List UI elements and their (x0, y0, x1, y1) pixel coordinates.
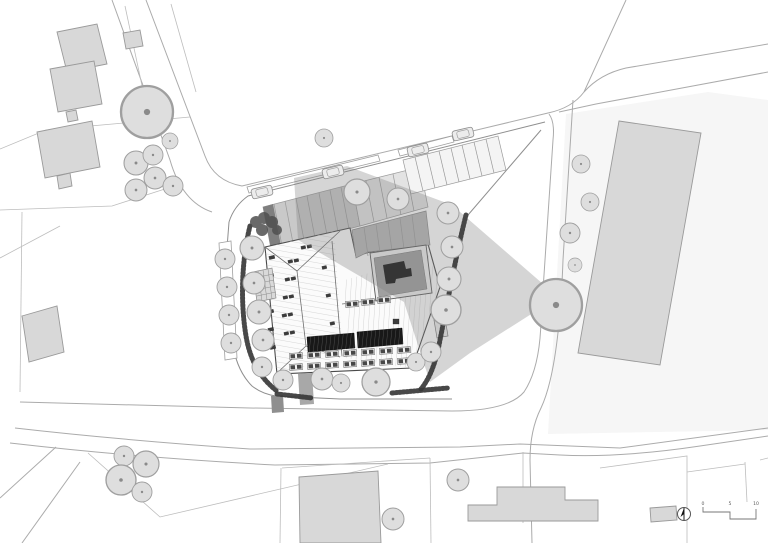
window-unit (325, 351, 338, 358)
window-unit (343, 350, 356, 357)
scale-label-10: 10 (753, 501, 759, 507)
tree (447, 469, 469, 491)
parcel-line (171, 4, 196, 92)
driveway-stub (271, 395, 284, 413)
road-edge (22, 462, 80, 543)
window-unit (307, 352, 320, 359)
tree (273, 370, 293, 390)
context-building (66, 110, 78, 122)
road-edge (584, 44, 768, 92)
window-unit (379, 348, 392, 355)
scale-label-0: 0 (702, 501, 705, 507)
parcel-line (0, 226, 60, 258)
tree (362, 368, 390, 396)
tree (252, 329, 274, 351)
tree (143, 145, 163, 165)
tree (311, 368, 333, 390)
parcel-line (760, 458, 768, 460)
context-building (650, 506, 677, 522)
map-annotations: 0 5 10 (678, 501, 759, 521)
context-building (22, 306, 64, 362)
window-unit (289, 353, 302, 360)
tree (387, 188, 409, 210)
window-unit (361, 349, 374, 356)
parcel-line (745, 462, 747, 502)
tree (132, 482, 152, 502)
tree (217, 277, 237, 297)
tree (441, 236, 463, 258)
tree (121, 86, 173, 138)
tree (125, 179, 147, 201)
parcel-line (687, 464, 745, 472)
context-building (123, 30, 143, 49)
tree (219, 305, 239, 325)
road-edge (146, 0, 626, 186)
tree (382, 508, 404, 530)
scale-label-5: 5 (729, 501, 732, 507)
tree (133, 451, 159, 477)
car (452, 127, 475, 141)
context-building (50, 61, 102, 112)
tree (247, 300, 271, 324)
tree (252, 357, 272, 377)
tree (437, 267, 461, 291)
window-unit (345, 301, 358, 308)
tree (215, 249, 235, 269)
window-unit (377, 297, 390, 304)
parcel-line (125, 6, 144, 95)
site-plan-page: 0 5 10 (0, 0, 768, 543)
window-unit (325, 362, 338, 369)
tree (581, 193, 599, 211)
window-unit (289, 364, 302, 371)
tree (560, 223, 580, 243)
tree (431, 295, 461, 325)
tree (114, 446, 134, 466)
site-plan-canvas: 0 5 10 (0, 0, 768, 543)
window-unit (343, 361, 356, 368)
context-building (468, 487, 598, 521)
tree (332, 374, 350, 392)
tree (106, 465, 136, 495)
hedge-south-east (392, 388, 448, 393)
tree (162, 133, 178, 149)
tree (315, 129, 333, 147)
tree (221, 333, 241, 353)
parcel-line (280, 468, 281, 543)
tree (568, 258, 582, 272)
tree (530, 279, 582, 331)
window-unit (379, 359, 392, 366)
parcel-line (430, 458, 431, 543)
tree (240, 236, 264, 260)
tree (421, 342, 441, 362)
context-building (57, 173, 72, 189)
tree (243, 272, 265, 294)
context-building (37, 121, 100, 178)
context-building (299, 471, 381, 543)
north-arrow-icon (678, 508, 691, 521)
road-edge (0, 447, 56, 498)
tree (437, 202, 459, 224)
window-unit (361, 299, 374, 306)
parcel-line (20, 212, 22, 392)
parcel-line (600, 456, 687, 543)
tree (572, 155, 590, 173)
window-unit (361, 360, 374, 367)
scale-bar: 0 5 10 (702, 501, 759, 519)
tree (344, 179, 370, 205)
tree (163, 176, 183, 196)
window-unit (397, 347, 410, 354)
